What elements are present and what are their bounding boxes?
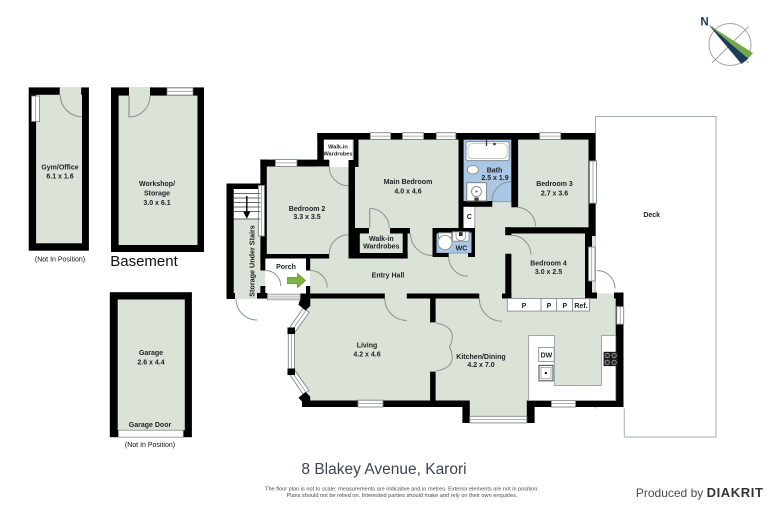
svg-text:Plans should not be relied on.: Plans should not be relied on. Intereste… bbox=[286, 493, 517, 499]
svg-text:(Not In Position): (Not In Position) bbox=[125, 442, 175, 449]
svg-text:2.5 x 1.9: 2.5 x 1.9 bbox=[481, 175, 508, 182]
svg-text:Bedroom 4: Bedroom 4 bbox=[530, 261, 567, 268]
svg-text:Gym/Office: Gym/Office bbox=[41, 164, 78, 171]
svg-text:Wardrobes: Wardrobes bbox=[363, 244, 399, 251]
svg-text:Bedroom 2: Bedroom 2 bbox=[289, 206, 326, 213]
svg-text:Entry Hall: Entry Hall bbox=[372, 273, 405, 280]
svg-text:Ref.: Ref. bbox=[574, 303, 587, 310]
svg-text:3.0 x 6.1: 3.0 x 6.1 bbox=[143, 200, 170, 207]
svg-text:Bath: Bath bbox=[487, 168, 503, 175]
svg-text:Garage: Garage bbox=[139, 350, 163, 357]
svg-text:Produced by DIAKRIT: Produced by DIAKRIT bbox=[636, 485, 764, 500]
svg-text:The floor plan is not to scale: The floor plan is not to scale; measurem… bbox=[265, 487, 539, 493]
svg-text:Kitchen/Dining: Kitchen/Dining bbox=[456, 354, 505, 361]
svg-text:Storage: Storage bbox=[144, 191, 170, 198]
svg-text:Storage Under Stairs: Storage Under Stairs bbox=[248, 225, 257, 297]
svg-text:Workshop/: Workshop/ bbox=[139, 181, 175, 188]
svg-text:2.7 x 3.6: 2.7 x 3.6 bbox=[541, 191, 568, 198]
svg-text:(Not In Position): (Not In Position) bbox=[35, 257, 85, 264]
svg-text:3.3 x 3.5: 3.3 x 3.5 bbox=[293, 214, 320, 221]
svg-text:WC: WC bbox=[456, 246, 468, 253]
svg-text:4.0 x 4.6: 4.0 x 4.6 bbox=[394, 189, 421, 196]
svg-text:2.6 x 4.4: 2.6 x 4.4 bbox=[137, 360, 164, 367]
svg-text:P: P bbox=[562, 303, 567, 310]
svg-text:C: C bbox=[467, 214, 472, 221]
svg-text:6.1 x 1.6: 6.1 x 1.6 bbox=[46, 174, 73, 181]
svg-text:4.2 x 7.0: 4.2 x 7.0 bbox=[467, 362, 494, 369]
svg-text:P: P bbox=[547, 303, 552, 310]
svg-text:Bedroom 3: Bedroom 3 bbox=[536, 181, 573, 188]
svg-text:N: N bbox=[700, 17, 708, 29]
svg-text:Main Bedroom: Main Bedroom bbox=[384, 179, 433, 186]
svg-text:P: P bbox=[522, 303, 527, 310]
svg-text:Living: Living bbox=[357, 343, 378, 350]
svg-text:Deck: Deck bbox=[643, 212, 660, 219]
svg-text:4.2 x 4.6: 4.2 x 4.6 bbox=[353, 351, 380, 358]
svg-text:Garage Door: Garage Door bbox=[129, 422, 172, 429]
svg-text:8 Blakey Avenue, Karori: 8 Blakey Avenue, Karori bbox=[301, 461, 466, 478]
svg-text:Walk-in: Walk-in bbox=[328, 145, 348, 151]
svg-text:Wardrobes: Wardrobes bbox=[323, 152, 352, 158]
svg-text:Basement: Basement bbox=[110, 253, 178, 270]
svg-text:3.0 x 2.5: 3.0 x 2.5 bbox=[535, 269, 562, 276]
svg-text:Walk-in: Walk-in bbox=[369, 236, 394, 243]
svg-text:DW: DW bbox=[541, 352, 553, 359]
svg-text:Porch: Porch bbox=[276, 264, 296, 271]
